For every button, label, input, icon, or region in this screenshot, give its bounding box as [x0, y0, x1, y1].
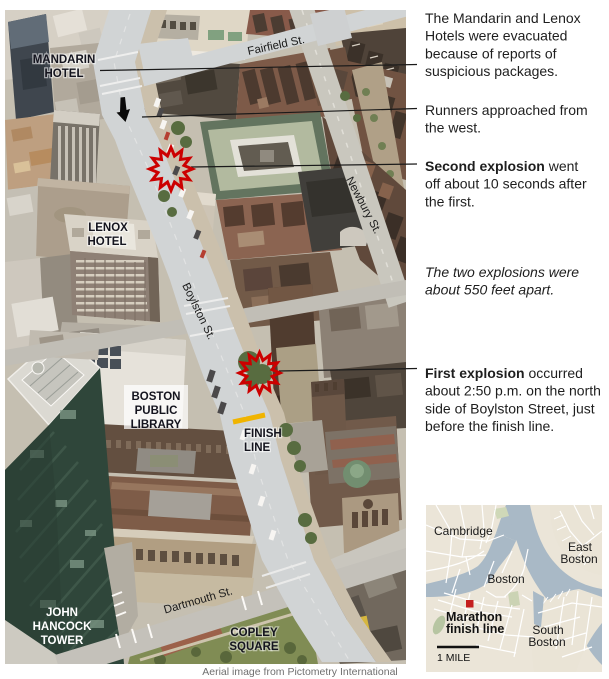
svg-text:JOHN: JOHN — [46, 607, 78, 619]
svg-text:Aerial image from Pictometry I: Aerial image from Pictometry Internation… — [202, 666, 398, 678]
svg-text:Boston: Boston — [560, 552, 597, 566]
svg-text:The Mandarin and Lenox: The Mandarin and Lenox — [425, 10, 581, 26]
svg-text:TOWER: TOWER — [41, 635, 84, 647]
svg-text:PUBLIC: PUBLIC — [135, 405, 178, 417]
svg-text:SQUARE: SQUARE — [229, 641, 279, 653]
svg-text:about 2:50 p.m. on the north: about 2:50 p.m. on the north — [425, 383, 601, 399]
svg-text:LIBRARY: LIBRARY — [131, 419, 182, 431]
svg-text:FINISH: FINISH — [244, 428, 282, 440]
svg-text:suspicious packages.: suspicious packages. — [425, 63, 558, 79]
svg-text:about 550 feet apart.: about 550 feet apart. — [425, 282, 554, 298]
svg-text:side of Boylston Street, just: side of Boylston Street, just — [425, 400, 595, 416]
svg-text:off about 10 seconds after: off about 10 seconds after — [425, 176, 587, 192]
svg-text:COPLEY: COPLEY — [230, 627, 278, 639]
svg-text:The two explosions were: The two explosions were — [425, 264, 579, 280]
svg-text:the west.: the west. — [425, 120, 481, 136]
svg-text:HANCOCK: HANCOCK — [33, 621, 92, 633]
svg-text:1 MILE: 1 MILE — [437, 652, 470, 664]
svg-text:because of reports of: because of reports of — [425, 45, 557, 61]
svg-text:Runners approached from: Runners approached from — [425, 102, 588, 118]
svg-text:Second explosion went: Second explosion went — [425, 158, 578, 174]
svg-text:Cambridge: Cambridge — [434, 524, 493, 538]
svg-text:HOTEL: HOTEL — [88, 236, 127, 248]
svg-text:before the finish line.: before the finish line. — [425, 418, 554, 434]
svg-text:finish line: finish line — [446, 622, 504, 636]
svg-text:LINE: LINE — [244, 442, 271, 454]
svg-text:the first.: the first. — [425, 193, 475, 209]
svg-text:BOSTON: BOSTON — [132, 391, 181, 403]
svg-text:Boston: Boston — [528, 635, 565, 649]
svg-text:Boston: Boston — [487, 572, 524, 586]
svg-text:HOTEL: HOTEL — [45, 68, 84, 80]
svg-text:First explosion occurred: First explosion occurred — [425, 365, 583, 381]
svg-text:MANDARIN: MANDARIN — [33, 54, 96, 66]
svg-text:LENOX: LENOX — [88, 222, 128, 234]
svg-text:Hotels were evacuated: Hotels were evacuated — [425, 28, 567, 44]
